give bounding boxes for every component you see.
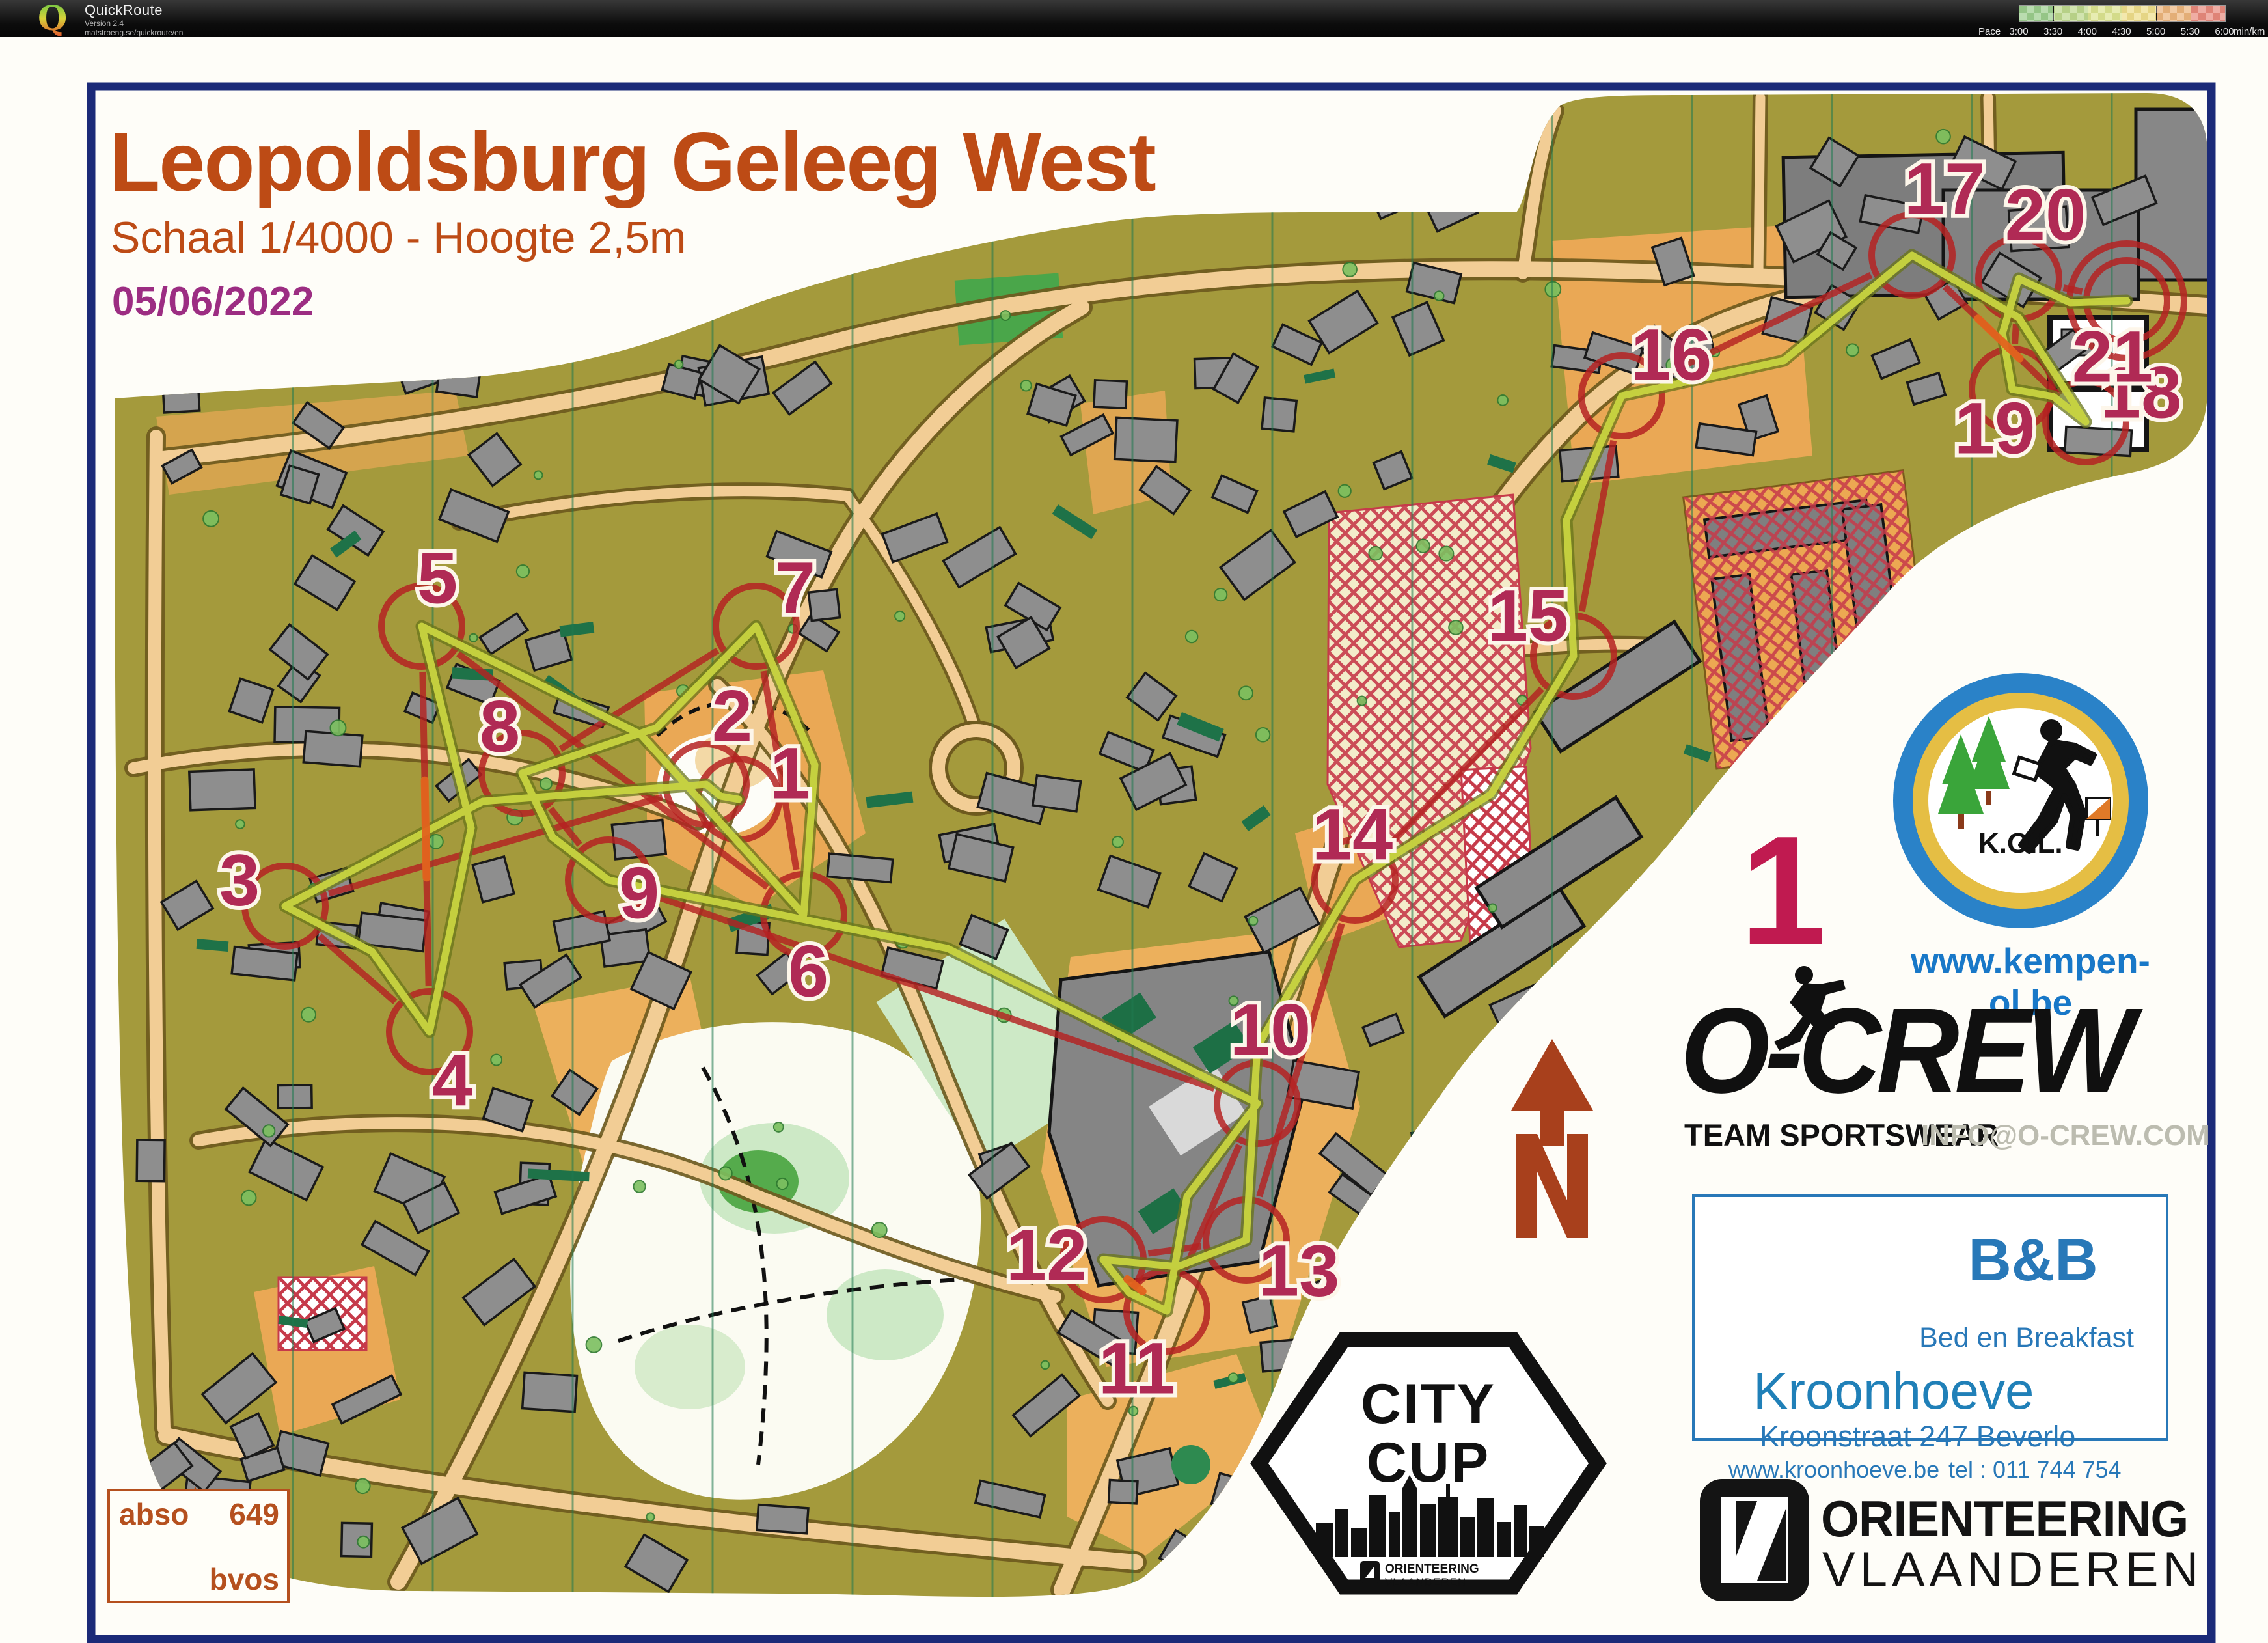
club-stamp-bvos: bvos <box>210 1562 279 1597</box>
control-number: 7 <box>775 547 815 629</box>
bnb-address: Kroonstraat 247 Beverlo <box>1760 1420 2075 1454</box>
citycup-lockup-2: VLAANDEREN <box>1385 1576 1466 1589</box>
bnb-phone: tel : 011 744 754 <box>1948 1456 2122 1484</box>
app-titlebar: Q QuickRoute Version 2.4 matstroeng.se/q… <box>0 0 2268 37</box>
control-number: 16 <box>1631 314 1712 396</box>
bnb-title: B&B <box>1942 1226 2124 1295</box>
pace-tick: 3:30 <box>2043 26 2062 37</box>
kol-logo: K.O.L. <box>1893 673 2148 928</box>
control-number: 21 <box>2072 316 2153 398</box>
ov-line1: ORIENTEERING <box>1821 1489 2188 1549</box>
kroonhoeve-ad: B&B Bed en Breakfast Kroonhoeve Kroonstr… <box>1692 1194 2168 1441</box>
control-number: 13 <box>1259 1230 1340 1312</box>
control-number: 12 <box>1006 1215 1087 1296</box>
control-number: 5 <box>417 538 458 619</box>
citycup-lockup-1: ORIENTEERING <box>1385 1562 1479 1577</box>
control-number: 4 <box>432 1040 472 1122</box>
map-title: Leopoldsburg Geleeg West <box>109 115 1155 210</box>
pace-tick: 5:00 <box>2146 26 2165 37</box>
citycup-title-1: CITY <box>1350 1372 1507 1437</box>
control-number: 20 <box>2005 174 2086 256</box>
control-number: 15 <box>1488 575 1569 657</box>
pace-label: Pace <box>1978 26 2001 37</box>
control-number: 19 <box>1954 388 2036 469</box>
map-scale-subtitle: Schaal 1/4000 - Hoogte 2,5m <box>111 212 687 263</box>
pace-tick: 4:00 <box>2078 26 2097 37</box>
citycup-title-2: CUP <box>1350 1431 1507 1495</box>
club-stamp-box: abso 649 bvos <box>107 1489 290 1603</box>
quickroute-logo-icon: Q <box>35 1 72 36</box>
control-number: 2 <box>712 676 752 757</box>
control-number: 8 <box>480 686 520 767</box>
course-number: 1 <box>1731 802 1835 980</box>
ocrew-email: INFO@O-CREW.COM <box>1921 1120 2210 1152</box>
pace-colorbar <box>2019 5 2226 22</box>
bnb-name: Kroonhoeve <box>1753 1361 2034 1421</box>
app-version: Version 2.4 <box>85 19 124 28</box>
quickroute-export: 123456789101112131415161718192021 <box>0 0 2268 1643</box>
club-stamp-number: 649 <box>229 1497 279 1532</box>
club-stamp-abso: abso <box>119 1497 189 1532</box>
control-number: 3 <box>219 840 260 921</box>
pace-tick: 3:00 <box>2009 26 2028 37</box>
kol-abbr: K.O.L. <box>1978 827 2063 859</box>
pace-unit: min/km <box>2234 26 2265 37</box>
pace-tick: 4:30 <box>2112 26 2131 37</box>
control-number: 10 <box>1230 989 1311 1071</box>
map-date: 05/06/2022 <box>112 279 314 325</box>
pace-tick: 6:00 <box>2215 26 2234 37</box>
control-number: 11 <box>1099 1328 1175 1409</box>
bnb-subtitle: Bed en Breakfast <box>1909 1322 2144 1354</box>
control-number: 17 <box>1904 148 1986 230</box>
control-number: 6 <box>788 931 828 1012</box>
app-name: QuickRoute <box>85 2 163 19</box>
control-number: 1 <box>770 733 810 814</box>
control-number: 14 <box>1312 794 1393 876</box>
pace-legend: Pace min/km 3:003:304:004:305:005:306:00 <box>2019 5 2224 35</box>
control-number: 9 <box>619 853 659 934</box>
ocrew-logo-text: O-CREW <box>1680 982 2130 1120</box>
pace-tick: 5:30 <box>2181 26 2200 37</box>
ov-line2: VLAANDEREN <box>1822 1541 2203 1598</box>
svg-text:Q: Q <box>38 1 67 36</box>
bnb-website: www.kroonhoeve.be <box>1728 1456 1939 1484</box>
app-url: matstroeng.se/quickroute/en <box>85 28 183 37</box>
orienteering-vlaanderen-icon <box>1700 1479 1809 1601</box>
